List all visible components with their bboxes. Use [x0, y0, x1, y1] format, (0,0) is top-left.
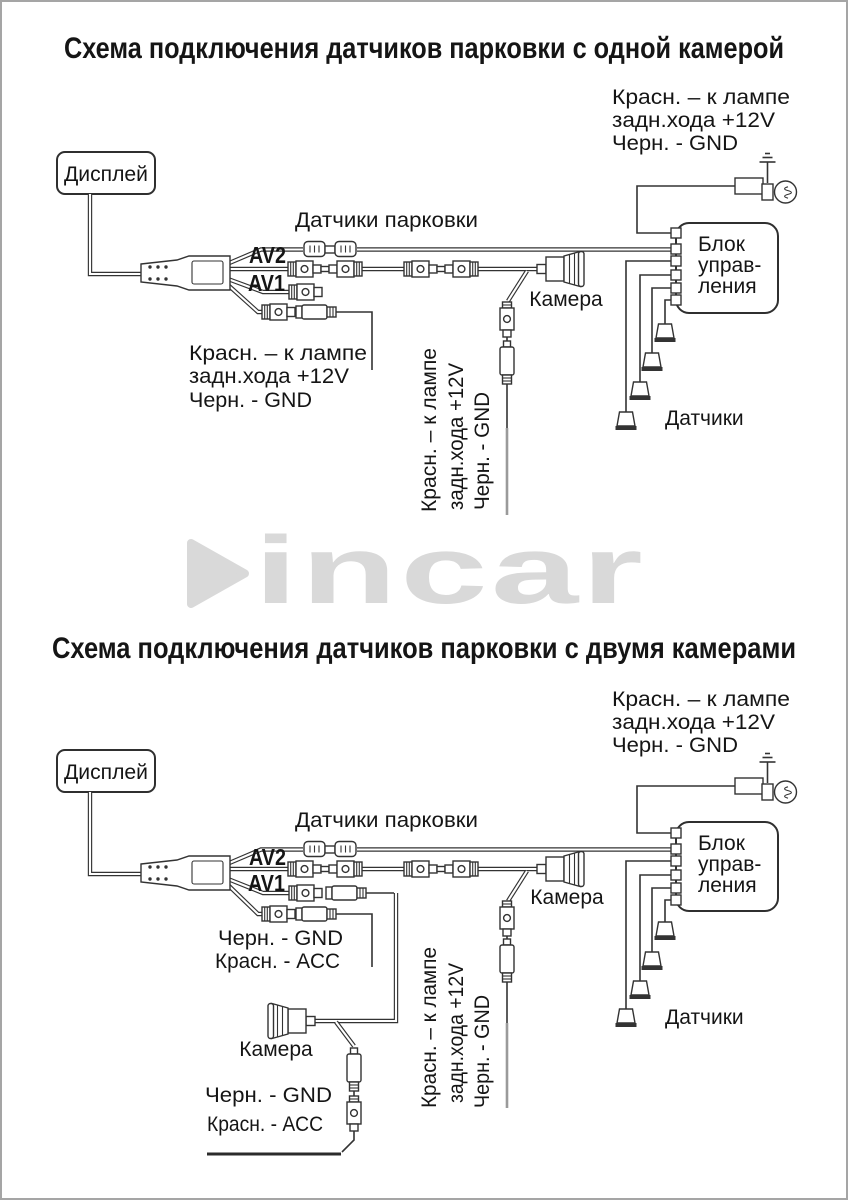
- parking-sensor-icon: [616, 412, 637, 430]
- display-cable: [90, 194, 141, 274]
- camera-icon: [268, 1004, 315, 1039]
- diagram1-power-note: Красн. – к лампе задн.хода +12V Черн. - …: [189, 342, 367, 412]
- sensors-label: Датчики: [665, 407, 744, 430]
- diagram-two: Схема подключения датчиков парковки с дв…: [52, 632, 797, 1154]
- lamp-note-line: задн.хода +12V: [612, 109, 775, 132]
- vertical-note-line: задн.хода +12V: [445, 963, 468, 1103]
- parking-sensor-icon: [616, 1009, 637, 1027]
- control-unit-line: Блок: [698, 233, 746, 256]
- power-note-line: Черн. - GND: [189, 389, 312, 412]
- scanned-wiring-diagram-page: Схема подключения датчиков парковки с од…: [0, 0, 848, 1200]
- power-barrel-icon: [500, 341, 514, 384]
- av1-label: AV1: [248, 270, 285, 296]
- power-note-line: Красн. – к лампе: [189, 342, 367, 365]
- camera-label: Камера: [239, 1038, 313, 1061]
- camera-power-pigtail: [508, 871, 527, 901]
- rca-plug-icon: [289, 284, 322, 300]
- diagram2-camera-power-note-vertical: Красн. – к лампе задн.хода +12V Черн. - …: [418, 947, 494, 1108]
- reverse-lamp-icon: [735, 754, 797, 804]
- sensor-wire: [652, 288, 671, 353]
- power-barrel-icon: [500, 939, 514, 982]
- rca-plug-icon: [500, 901, 514, 936]
- parking-sensor-icon: [630, 981, 651, 999]
- rca-plug-icon: [289, 885, 322, 901]
- camera2-power-pigtail: [336, 1022, 354, 1046]
- incar-logo-triangle-icon: [191, 543, 245, 604]
- rca-plug-icon: [262, 906, 295, 922]
- parking-sensor-icon: [630, 382, 651, 400]
- av1-label: AV1: [248, 870, 285, 896]
- control-unit-line: управ-: [698, 254, 761, 277]
- camera-icon: [537, 252, 584, 287]
- lamp-note-line: задн.хода +12V: [612, 711, 775, 734]
- diagram1-title: Схема подключения датчиков парковки с од…: [64, 32, 784, 65]
- diagram1-reverse-lamp-note: Красн. – к лампе задн.хода +12V Черн. - …: [612, 86, 790, 155]
- diagram2-reverse-lamp-note: Красн. – к лампе задн.хода +12V Черн. - …: [612, 688, 790, 757]
- parking-sensor-icon: [642, 353, 663, 371]
- display-cable: [90, 792, 141, 874]
- rca-coupling-icon: [404, 861, 478, 877]
- parking-sensors-cable-label: Датчики парковки: [295, 209, 478, 232]
- camera-label: Камера: [530, 886, 604, 909]
- lamp-note-line: Черн. - GND: [612, 734, 738, 757]
- sensor-wire: [665, 300, 671, 324]
- camera-label: Камера: [529, 288, 603, 311]
- display-connector-icon: [141, 856, 230, 890]
- av2-label: AV2: [249, 844, 286, 870]
- diagram2-av1-note: Черн. - GND Красн. - ACC: [215, 927, 343, 973]
- diagram2-camera2-note: Черн. - GND Красн. - ACC: [205, 1084, 332, 1136]
- vertical-note-line: Черн. - GND: [471, 392, 494, 510]
- vertical-note-line: задн.хода +12V: [445, 363, 468, 510]
- av1-note-line: Красн. - ACC: [215, 950, 340, 973]
- sensor-wire: [652, 888, 671, 952]
- rca-plug-icon: [262, 304, 295, 320]
- camera-icon: [537, 852, 584, 887]
- control-unit-line: управ-: [698, 853, 761, 876]
- parking-sensor-icon: [642, 952, 663, 970]
- parking-sensor-icon: [655, 922, 676, 940]
- display-connector-icon: [141, 256, 230, 290]
- vertical-note-line: Красн. – к лампе: [418, 947, 441, 1108]
- vertical-note-line: Черн. - GND: [471, 995, 494, 1108]
- inline-connector-icon: [304, 242, 356, 257]
- display-label: Дисплей: [64, 163, 148, 186]
- control-unit-line: Блок: [698, 832, 746, 855]
- lamp-note-line: Красн. – к лампе: [612, 688, 790, 711]
- diagram1-camera-power-note-vertical: Красн. – к лампе задн.хода +12V Черн. - …: [418, 348, 494, 512]
- power-barrel-icon: [296, 305, 336, 319]
- av1-note-line: Черн. - GND: [218, 927, 343, 950]
- av2-label: AV2: [249, 242, 286, 268]
- inline-connector-icon: [304, 842, 356, 857]
- reverse-lamp-icon: [735, 154, 797, 204]
- display-cable: [90, 194, 141, 274]
- camera2-wire: [342, 1131, 354, 1152]
- control-unit-line: ления: [698, 275, 757, 298]
- incar-logo: incar: [191, 517, 646, 624]
- camera2-note-line: Красн. - ACC: [207, 1113, 323, 1136]
- lamp-note-line: Черн. - GND: [612, 132, 738, 155]
- rca-plug-icon: [347, 1096, 361, 1131]
- display-cable: [90, 792, 141, 874]
- diagram2-title: Схема подключения датчиков парковки с дв…: [52, 632, 796, 665]
- incar-logo-text: incar: [254, 517, 646, 624]
- camera2-note-line: Черн. - GND: [205, 1084, 332, 1107]
- vertical-note-line: Красн. – к лампе: [418, 348, 441, 512]
- sensors-label: Датчики: [665, 1006, 744, 1029]
- display-label: Дисплей: [64, 761, 148, 784]
- lamp-note-line: Красн. – к лампе: [612, 86, 790, 109]
- camera-power-pigtail: [508, 271, 527, 301]
- power-barrel-icon: [296, 907, 336, 921]
- wiring-diagram-svg: Схема подключения датчиков парковки с од…: [0, 0, 848, 1200]
- rca-coupling-icon: [288, 861, 362, 877]
- power-note-line: задн.хода +12V: [189, 365, 349, 388]
- power-barrel-icon: [347, 1048, 361, 1091]
- control-unit-line: ления: [698, 874, 757, 897]
- power-barrel-icon: [326, 886, 366, 900]
- diagram-one: Схема подключения датчиков парковки с од…: [57, 32, 797, 515]
- parking-sensor-icon: [655, 324, 676, 342]
- rca-coupling-icon: [404, 261, 478, 277]
- rca-coupling-icon: [288, 261, 362, 277]
- parking-sensors-cable-label: Датчики парковки: [295, 809, 478, 832]
- sensor-wire: [665, 900, 671, 922]
- rca-plug-icon: [500, 302, 514, 337]
